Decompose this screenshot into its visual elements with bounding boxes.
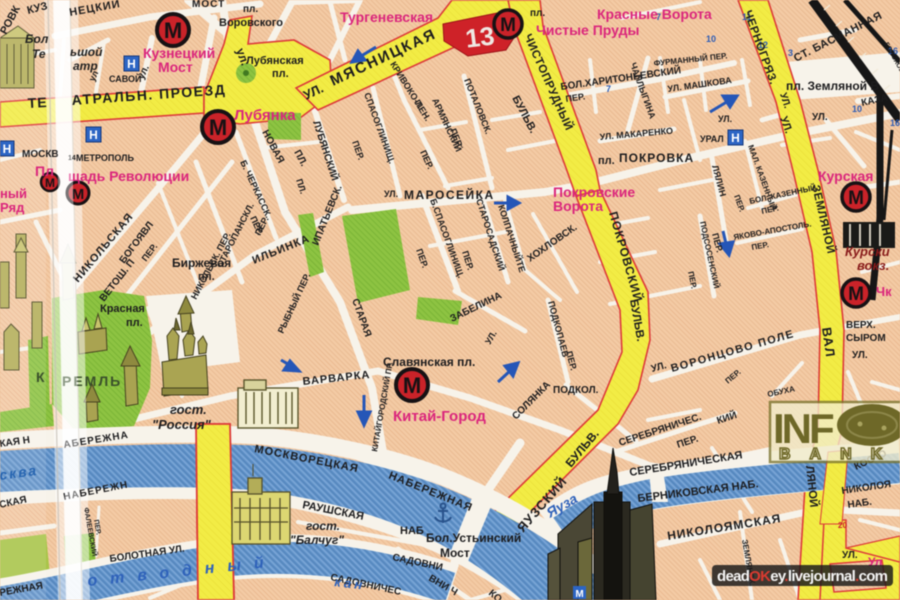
svg-text:Курская: Курская <box>818 168 873 184</box>
svg-text:Те: Те <box>32 47 46 61</box>
svg-text:ТЕ: ТЕ <box>27 94 48 111</box>
svg-text:М: М <box>500 15 516 36</box>
svg-text:НАБ: НАБ <box>400 525 424 537</box>
svg-text:вокз.: вокз. <box>857 258 889 273</box>
svg-text:Мост: Мост <box>158 59 193 75</box>
svg-text:Пл: Пл <box>35 163 54 179</box>
svg-text:Н: Н <box>127 57 136 71</box>
svg-text:13: 13 <box>464 20 496 53</box>
svg-text:УРАЛ: УРАЛ <box>700 134 724 144</box>
svg-text:Славянская пл.: Славянская пл. <box>383 355 475 369</box>
svg-text:УЛ.: УЛ. <box>852 350 868 361</box>
svg-text:УЛ.: УЛ. <box>842 550 858 561</box>
svg-text:УЛ.: УЛ. <box>718 114 732 124</box>
svg-text:гост.: гост. <box>306 519 340 533</box>
svg-text:М: М <box>72 186 85 203</box>
svg-text:пл. Земляной В: пл. Земляной В <box>786 79 879 93</box>
svg-text:щадь Революции: щадь Революции <box>68 168 189 184</box>
svg-text:М: М <box>575 589 583 600</box>
svg-text:Лубянская: Лубянская <box>246 55 304 67</box>
svg-text:Н: Н <box>3 142 12 156</box>
svg-text:Чистые Пруды: Чистые Пруды <box>536 22 639 38</box>
svg-text:10: 10 <box>852 104 862 114</box>
svg-text:пл.: пл. <box>272 68 289 80</box>
svg-text:Красные Ворота: Красные Ворота <box>597 6 712 22</box>
svg-text:Н: Н <box>731 131 740 145</box>
svg-text:М: М <box>209 115 227 140</box>
svg-text:пл.: пл. <box>198 271 215 283</box>
svg-text:"Россия": "Россия" <box>152 417 212 432</box>
svg-text:М: М <box>164 18 182 43</box>
svg-text:СЫРОМ: СЫРОМ <box>846 333 886 344</box>
svg-text:"Балчуг": "Балчуг" <box>290 533 344 547</box>
svg-text:Чк: Чк <box>876 284 892 299</box>
svg-text:Ворота: Ворота <box>553 198 603 214</box>
svg-text:Мост: Мост <box>440 546 470 560</box>
svg-text:BANK: BANK <box>779 446 900 463</box>
svg-text:ПОКРОВКА: ПОКРОВКА <box>619 151 694 165</box>
svg-text:М: М <box>848 188 864 209</box>
svg-text:16: 16 <box>890 118 900 128</box>
svg-text:Красная: Красная <box>100 303 145 315</box>
svg-text:Ряд: Ряд <box>0 200 25 215</box>
svg-text:МОСТ: МОСТ <box>192 0 225 10</box>
svg-text:МЕТРОПОЛЬ: МЕТРОПОЛЬ <box>76 153 134 163</box>
svg-text:Курски: Курски <box>845 244 890 259</box>
svg-text:пл.: пл. <box>598 155 615 167</box>
svg-text:УЛ.: УЛ. <box>812 112 828 123</box>
svg-text:Бол: Бол <box>25 32 49 46</box>
svg-text:20: 20 <box>838 521 847 530</box>
svg-text:К: К <box>36 369 45 385</box>
svg-text:пл.: пл. <box>243 4 258 15</box>
svg-text:М: М <box>403 373 421 398</box>
svg-text:INF: INF <box>773 405 834 452</box>
svg-text:пл.: пл. <box>530 8 545 19</box>
svg-text:Китай-Город: Китай-Город <box>393 408 486 425</box>
svg-text:гост.: гост. <box>170 402 207 417</box>
svg-text:пл.: пл. <box>126 317 143 329</box>
svg-text:deadOKey.livejournal.com: deadOKey.livejournal.com <box>717 568 888 585</box>
svg-text:УЛ.: УЛ. <box>384 189 398 199</box>
svg-text:Бол.Устьинский: Бол.Устьинский <box>426 531 521 545</box>
svg-text:ВЕРХ.: ВЕРХ. <box>846 320 876 331</box>
svg-text:10: 10 <box>706 34 716 44</box>
svg-text:МОСКВ: МОСКВ <box>22 149 59 160</box>
svg-text:Воровского: Воровского <box>219 17 283 29</box>
svg-text:ный: ный <box>0 186 27 201</box>
svg-text:ьшой: ьшой <box>70 45 103 59</box>
svg-text:ПОДКОЛ.: ПОДКОЛ. <box>553 385 599 396</box>
svg-text:Тургеневская: Тургеневская <box>340 9 433 25</box>
svg-text:Н: Н <box>89 128 98 142</box>
svg-text:М: М <box>848 284 864 305</box>
svg-text:Лубянка: Лубянка <box>234 107 296 124</box>
